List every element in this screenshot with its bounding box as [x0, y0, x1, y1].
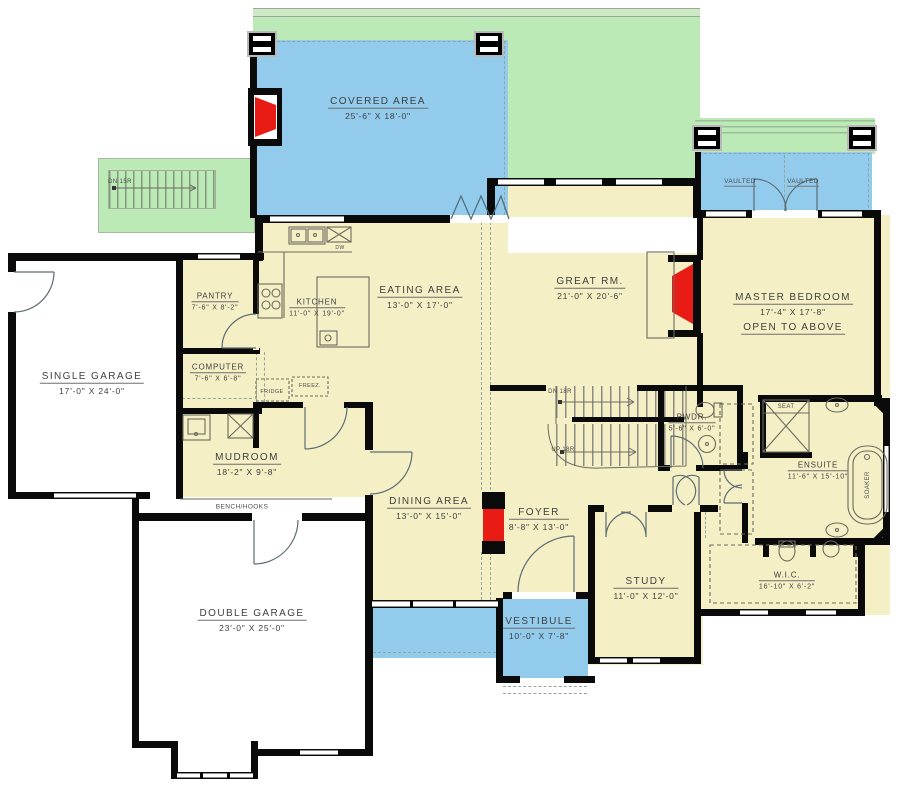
lawn-top-edge	[253, 8, 700, 17]
room-label-wic: W.I.C.16'-10" X 6'-2"	[759, 570, 815, 590]
wall	[253, 402, 303, 408]
dashed-line	[257, 41, 506, 42]
floor-plan: COVERED AREA25'-6" X 18'-0" SINGLE GARAG…	[0, 0, 900, 796]
vaulted-label: VAULTED	[787, 178, 819, 187]
floor-great	[494, 182, 703, 217]
stairs-down-label: DN 18R	[548, 389, 572, 395]
exterior-stairs	[108, 170, 216, 209]
window	[556, 179, 602, 185]
wall	[694, 508, 701, 544]
freezer-label: FREEZ.	[299, 383, 321, 389]
wall	[763, 541, 769, 557]
room-label-dining-area: DINING AREA13'-0" X 15'-0"	[387, 496, 471, 521]
wall	[742, 452, 748, 469]
window	[806, 610, 836, 615]
wall	[700, 609, 865, 616]
wall	[874, 210, 881, 406]
door-opening	[365, 450, 373, 495]
window	[456, 601, 498, 607]
room-label-master-bedroom: MASTER BEDROOM 17'-4" X 17'-8" OPEN TO A…	[733, 292, 853, 335]
garage-door-trim	[230, 773, 253, 778]
window	[884, 446, 889, 512]
window	[740, 610, 768, 615]
stairs-lower-flight	[556, 424, 686, 466]
window	[822, 211, 862, 217]
garage-door-trim	[203, 773, 227, 778]
dashed-line	[481, 552, 482, 600]
wall	[132, 497, 139, 748]
wall	[365, 608, 373, 756]
window	[706, 211, 746, 217]
wall	[755, 538, 890, 545]
foyer-fireplace-cap	[482, 492, 505, 509]
wall	[742, 503, 748, 543]
fridge-label: FRIDGE	[260, 389, 283, 395]
dashed-line	[705, 512, 706, 538]
wall	[176, 348, 260, 354]
great-room-fireplace-frame	[668, 330, 700, 337]
room-label-study: STUDY11'-0" X 12'-0"	[613, 576, 678, 601]
room-label-pantry: PANTRY7'-6" X 8'-2"	[192, 291, 239, 311]
bench-hooks-label: BENCH/HOOKS	[216, 504, 268, 511]
wall	[697, 218, 703, 260]
wall	[490, 385, 546, 391]
wall	[255, 215, 263, 261]
foyer-fireplace-icon	[483, 509, 504, 541]
door-opening	[512, 592, 576, 599]
door-opening	[672, 505, 700, 512]
dashed-line	[868, 153, 869, 213]
wall	[344, 402, 373, 408]
great-room-fireplace-frame	[693, 255, 701, 337]
column-post-icon	[694, 127, 720, 149]
wall	[694, 540, 701, 664]
dashed-line	[368, 652, 501, 653]
dashed-line	[490, 552, 491, 600]
stairs-up-label: UP 18R	[551, 447, 574, 453]
door-opening	[252, 513, 302, 521]
wall	[588, 599, 595, 664]
window	[633, 658, 660, 663]
window	[616, 179, 662, 185]
room-label-great-room: GREAT RM.21'-0" X 20'-6"	[554, 276, 625, 301]
dashed-line	[699, 153, 870, 154]
door-opening	[303, 402, 344, 408]
dashed-line	[503, 686, 587, 687]
room-label-double-garage: DOUBLE GARAGE23'-0" X 25'-0"	[198, 608, 307, 633]
window	[600, 658, 627, 663]
wall	[564, 676, 595, 683]
wall	[858, 545, 865, 616]
door-opening	[670, 465, 696, 471]
wall	[496, 598, 503, 683]
wall	[658, 465, 670, 471]
column-post-icon	[849, 127, 875, 149]
room-label-ensuite: ENSUITE11'-6" X 15'-10"	[788, 460, 848, 480]
wall	[253, 402, 259, 448]
stairs-railing	[572, 417, 684, 422]
wall	[176, 253, 183, 499]
wall	[496, 676, 520, 683]
room-label-kitchen: KITCHEN11'-0" X 19'-0"	[289, 297, 345, 317]
wall	[648, 505, 672, 512]
door-opening	[253, 314, 259, 350]
window	[372, 601, 410, 607]
room-label-foyer: FOYER8'-8" X 13'-0"	[509, 507, 569, 532]
front-porch	[368, 608, 503, 658]
window	[413, 601, 453, 607]
wall	[696, 465, 743, 471]
lawn-right	[508, 42, 700, 182]
door-opening	[8, 272, 16, 312]
garage-door-trim	[177, 773, 200, 778]
window	[270, 216, 344, 222]
door-opening	[752, 210, 818, 218]
foyer-fireplace-cap	[482, 541, 505, 554]
garage-door-trim	[54, 493, 136, 498]
room-label-mudroom: MUDROOM18'-2" X 9'-8"	[213, 452, 281, 477]
soaker-label: SOAKER	[865, 471, 871, 498]
door-opening	[604, 505, 648, 512]
wall	[365, 402, 373, 608]
door-opening	[742, 469, 748, 503]
wall	[853, 541, 859, 557]
room-label-vestibule: VESTIBULE10'-0" X 7'-8"	[503, 616, 575, 641]
double-garage-area	[132, 497, 372, 775]
dashed-line	[256, 352, 257, 402]
wall	[588, 505, 595, 599]
lawn-master-steps	[695, 120, 875, 137]
wall	[760, 452, 812, 458]
room-label-computer: COMPUTER7'-6" X 6'-8"	[190, 362, 246, 382]
door-opening	[450, 215, 509, 223]
wall	[8, 253, 183, 261]
column-post-icon	[249, 33, 275, 55]
seat-label: SEAT	[778, 404, 795, 410]
wall	[176, 408, 262, 414]
stairs-down-exterior-label: DN 15R	[108, 179, 132, 185]
wall	[697, 333, 703, 407]
room-label-powder: PWDR.5'-6" X 6'-0"	[669, 412, 716, 432]
covered-area-patio	[255, 40, 508, 215]
wall	[760, 398, 766, 458]
wall	[810, 541, 816, 557]
window	[300, 750, 338, 755]
dashed-line	[504, 41, 505, 215]
dashed-line	[182, 398, 252, 399]
wall	[695, 152, 701, 215]
dishwasher-label: DW	[335, 245, 344, 251]
window	[498, 179, 544, 185]
wall	[658, 385, 664, 471]
window	[198, 254, 240, 259]
wall	[253, 260, 259, 318]
dashed-line	[784, 155, 785, 212]
dashed-line	[481, 222, 482, 490]
room-label-single-garage: SINGLE GARAGE17'-0" X 24'-0"	[40, 371, 144, 396]
dashed-line	[490, 222, 491, 490]
room-label-eating-area: EATING AREA13'-0" X 17'-0"	[377, 285, 462, 310]
column-post-icon	[476, 33, 502, 55]
dashed-line	[503, 693, 587, 694]
room-label-covered-area: COVERED AREA25'-6" X 18'-0"	[328, 96, 428, 121]
wall	[700, 505, 718, 512]
vaulted-label: VAULTED	[724, 178, 756, 187]
wall	[758, 395, 882, 402]
